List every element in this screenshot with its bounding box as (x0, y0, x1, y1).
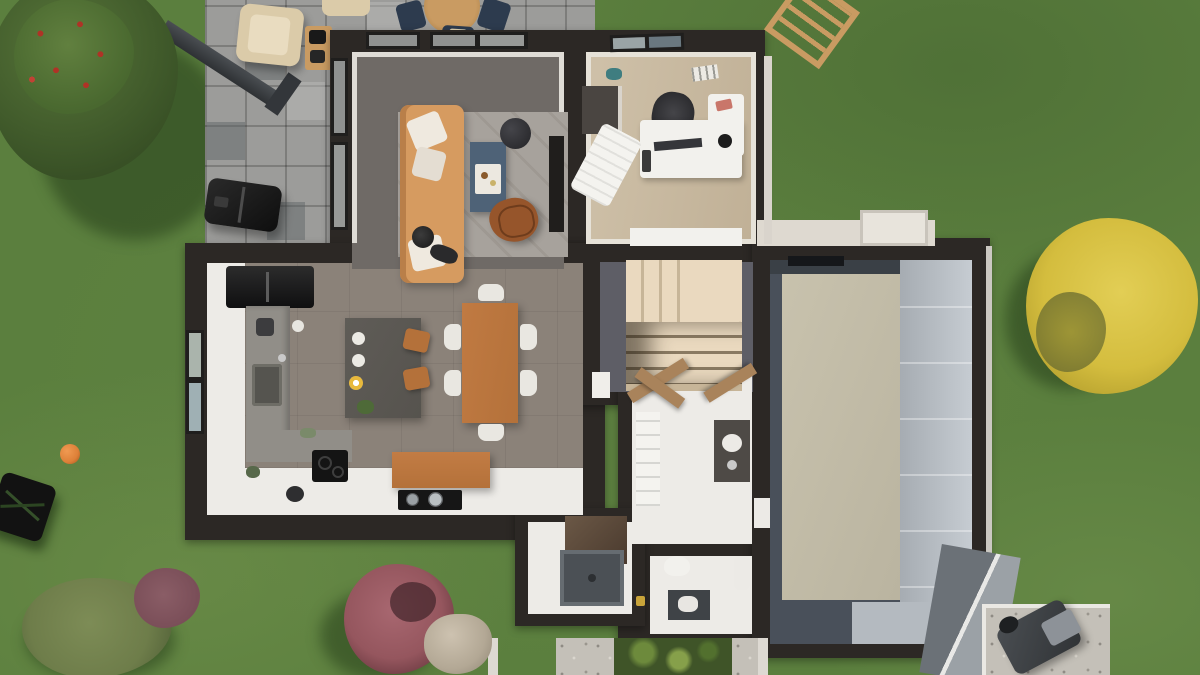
fridge-handle (266, 272, 269, 302)
bed-gravel (732, 638, 758, 675)
dining-table (462, 303, 518, 423)
bed-plants (614, 638, 732, 675)
toilet (664, 556, 690, 576)
grill-tool (309, 30, 326, 44)
shower-tray (560, 550, 624, 606)
floor-plant (412, 226, 434, 248)
bed-curb (758, 638, 768, 675)
tray-item (490, 180, 496, 186)
outdoor-armchair-edge (322, 0, 370, 16)
kitchen-sink (252, 364, 282, 406)
staircase-upper-flight (626, 260, 688, 322)
office-exterior-trim (764, 56, 772, 244)
office-desk-wing (708, 94, 744, 156)
office-window (610, 33, 685, 53)
monitor (654, 138, 703, 151)
yellow-tree (1018, 212, 1200, 402)
kitchen-stool-dark (286, 486, 304, 502)
staircase-winder-fan (688, 260, 742, 324)
island-plant (357, 400, 374, 414)
garage-window-strip (788, 256, 844, 266)
egg-plate (349, 376, 363, 390)
pot (406, 493, 419, 506)
living-window-north-1 (366, 32, 420, 49)
kitchen-plant (246, 466, 260, 478)
armchair-cushion (247, 14, 291, 56)
coffee-table-tray (475, 164, 501, 194)
grill-tool (310, 50, 325, 63)
bath-vanity (714, 420, 750, 482)
floor-plan-render (0, 0, 1200, 675)
garage-ceiling-slab (782, 270, 900, 600)
office-sideboard (630, 228, 742, 246)
fridge (226, 266, 314, 308)
water-heater (734, 556, 750, 590)
bar-stool (402, 366, 430, 391)
orange-ball (60, 444, 80, 464)
desk-paper (715, 98, 733, 111)
outdoor-side-table (305, 26, 332, 70)
dining-chair (520, 324, 537, 350)
vanity-sink (722, 434, 742, 452)
outdoor-armchair (235, 3, 305, 67)
sprinkler (606, 68, 622, 80)
dining-chair (444, 324, 461, 350)
island-plate (352, 354, 365, 367)
bed-gravel (556, 638, 614, 675)
sofa-pillow (411, 146, 447, 182)
wood-sideboard (392, 452, 490, 488)
accent-tile (207, 122, 245, 160)
desk-item (718, 134, 732, 148)
basin-bowl (678, 596, 698, 612)
dining-chair (478, 284, 504, 301)
living-window-west-1 (331, 58, 348, 136)
vanity-faucet (727, 460, 737, 470)
bbq-handle (214, 196, 229, 208)
dining-chair (444, 370, 461, 396)
counter-bowl (292, 320, 304, 332)
faucet (278, 354, 286, 362)
counter-herbs (300, 428, 316, 438)
laundry-shelving (636, 412, 660, 506)
apple-tree (0, 0, 205, 215)
counter-cooktop (312, 450, 348, 482)
dining-chair (478, 424, 504, 441)
pot (428, 492, 443, 507)
tv-cabinet (549, 136, 564, 232)
olive-shrub (18, 568, 188, 675)
hall-door-frame (592, 372, 610, 398)
kitchen-window (186, 330, 204, 434)
amber-bottle (636, 596, 645, 606)
dining-chair (520, 370, 537, 396)
pouf (500, 118, 531, 149)
desk-item (642, 150, 651, 172)
leather-chair-seam (496, 202, 537, 240)
island-hob (398, 490, 462, 510)
burner (332, 466, 344, 478)
living-window-west-2 (331, 142, 348, 230)
shower-drain (588, 574, 596, 582)
counter-appliance (256, 318, 274, 336)
island-plate (352, 332, 365, 345)
wc-washbasin (668, 590, 710, 620)
burner (318, 456, 332, 470)
sofa-pillow (405, 110, 449, 152)
living-window-north-2 (430, 32, 528, 49)
garage-side-door (754, 498, 770, 528)
entrance-porch (860, 210, 928, 246)
tray-item (481, 172, 488, 179)
bbq-lid-seam (238, 187, 246, 223)
